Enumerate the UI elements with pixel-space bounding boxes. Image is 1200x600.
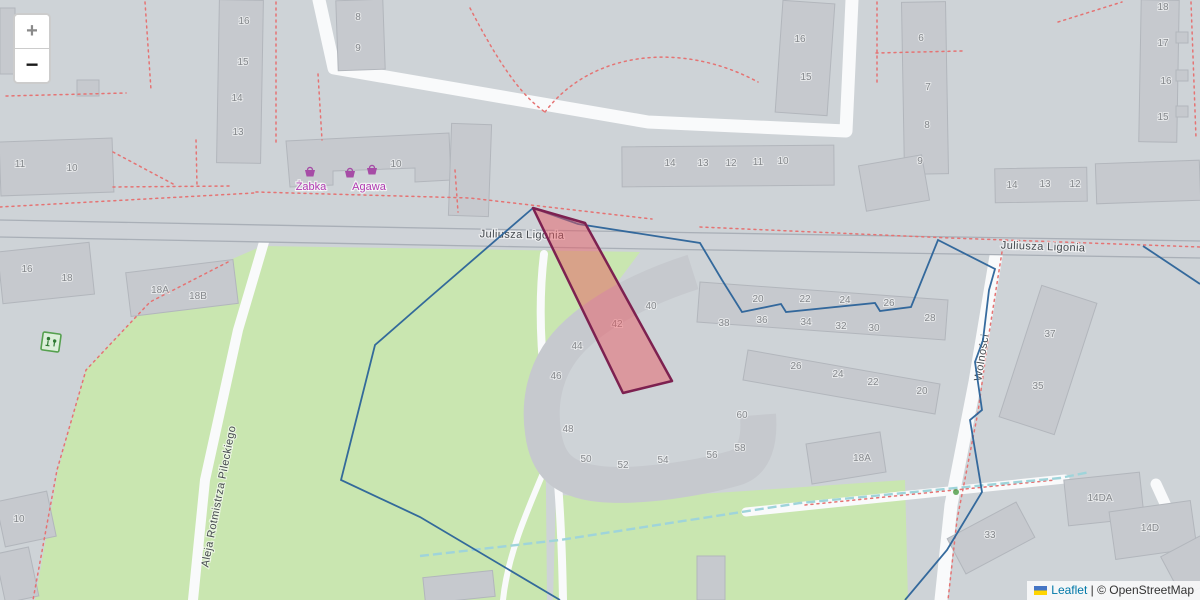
building-number: 14 [664, 158, 676, 169]
building-number: 32 [835, 321, 847, 332]
building-number: 14 [231, 93, 243, 104]
building-number: 24 [839, 295, 851, 306]
building-number: 15 [800, 72, 812, 83]
tree-icon [953, 489, 959, 495]
attribution-separator: | [1091, 583, 1094, 597]
zoom-control: + − [13, 13, 51, 84]
building-number: 6 [918, 33, 924, 44]
building-number: 58 [734, 443, 746, 454]
building-number: 34 [800, 317, 812, 328]
building-number: 37 [1044, 329, 1056, 340]
building-number: 14 [1006, 180, 1018, 191]
building-number: 9 [355, 43, 361, 54]
leaflet-link[interactable]: Leaflet [1051, 583, 1087, 597]
building-number: 17 [1157, 38, 1169, 49]
building-number: 56 [706, 450, 718, 461]
attribution-bar: Leaflet | © OpenStreetMap [1027, 581, 1200, 600]
building-number: 22 [867, 377, 879, 388]
building-number: 16 [238, 16, 250, 27]
map-canvas[interactable]: 1110161514138910141312111016156789181716… [0, 0, 1200, 600]
building-number: 10 [390, 159, 402, 170]
building-number: 12 [1069, 179, 1081, 190]
building-number: 60 [736, 410, 748, 421]
osm-attribution: © OpenStreetMap [1097, 583, 1194, 597]
building-number: 18A [151, 285, 169, 296]
zoom-in-button[interactable]: + [15, 15, 49, 49]
building-number: 10 [777, 156, 789, 167]
building-number: 15 [237, 57, 249, 68]
building-number: 22 [799, 294, 811, 305]
building-number: 15 [1157, 112, 1169, 123]
building-number: 18B [189, 291, 207, 302]
building-number: 26 [883, 298, 895, 309]
building-number: 40 [645, 301, 657, 312]
building-number: 13 [232, 127, 244, 138]
building-number: 16 [21, 264, 33, 275]
building-number: 28 [924, 313, 936, 324]
building-number: 33 [984, 530, 996, 541]
shop-label: Żabka [296, 180, 327, 193]
building-number: 16 [1160, 76, 1172, 87]
map-svg: 1110161514138910141312111016156789181716… [0, 0, 1200, 600]
building-number: 18 [61, 273, 73, 284]
building-number: 54 [657, 455, 669, 466]
building-number: 46 [550, 371, 562, 382]
building-number: 44 [571, 341, 583, 352]
building-number: 14DA [1087, 493, 1112, 504]
building-number: 50 [580, 454, 592, 465]
building-number: 12 [725, 158, 737, 169]
building-number: 20 [752, 294, 764, 305]
building-number: 13 [697, 158, 709, 169]
building-number: 18A [853, 453, 871, 464]
building-number: 10 [66, 163, 78, 174]
building-number: 9 [917, 156, 923, 167]
building-number: 16 [794, 34, 806, 45]
building-number: 8 [355, 12, 361, 23]
playground-icon [41, 332, 61, 352]
building-number: 8 [924, 120, 930, 131]
building-number: 18 [1157, 2, 1169, 13]
building-number: 48 [562, 424, 574, 435]
building-number: 52 [617, 460, 629, 471]
building-number: 20 [916, 386, 928, 397]
building-number: 36 [756, 315, 768, 326]
shop-label: Agawa [352, 181, 387, 193]
building-number: 13 [1039, 179, 1051, 190]
building-number: 26 [790, 361, 802, 372]
building-number: 10 [13, 514, 25, 525]
ukraine-flag-icon [1034, 586, 1047, 595]
building-number: 35 [1032, 381, 1044, 392]
zoom-out-button[interactable]: − [15, 49, 49, 82]
building-number: 11 [753, 157, 764, 168]
building-number: 30 [868, 323, 880, 334]
building-number: 24 [832, 369, 844, 380]
building-number: 7 [925, 82, 931, 93]
building-number: 11 [15, 159, 26, 170]
building-number: 38 [718, 318, 730, 329]
building-number: 14D [1141, 523, 1159, 534]
